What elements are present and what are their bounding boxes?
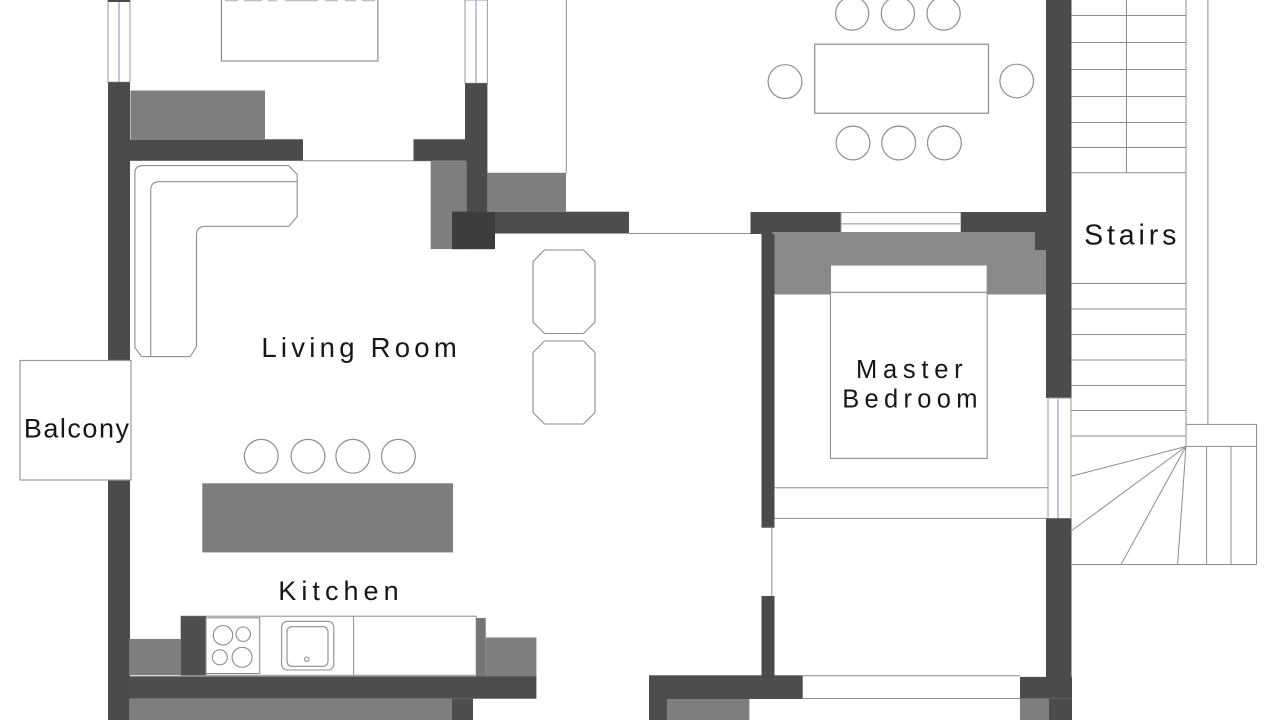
svg-text:Kitchen: Kitchen xyxy=(278,576,403,606)
svg-text:Living Room: Living Room xyxy=(261,332,461,363)
svg-text:Bedroom: Bedroom xyxy=(842,386,983,414)
svg-text:Balcony: Balcony xyxy=(24,414,131,444)
svg-text:Stairs: Stairs xyxy=(1084,220,1180,252)
svg-text:Master: Master xyxy=(856,356,968,384)
